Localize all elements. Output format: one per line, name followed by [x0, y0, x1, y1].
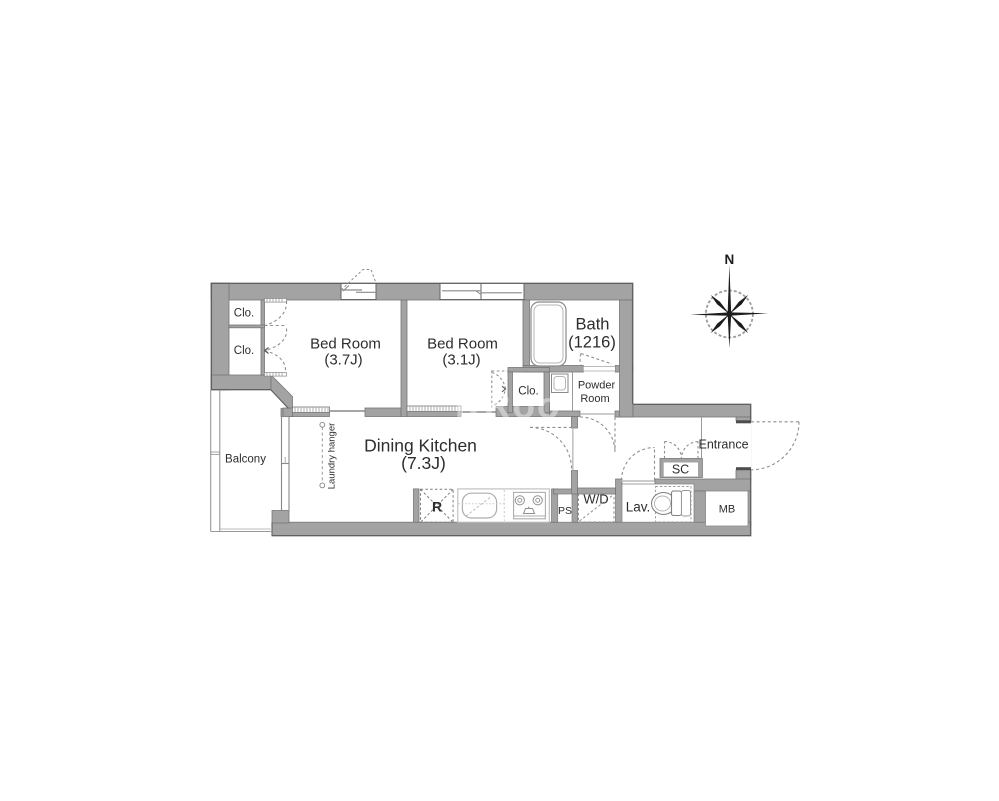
svg-text:SC: SC	[672, 463, 689, 477]
svg-text:(3.7J): (3.7J)	[324, 352, 362, 369]
svg-text:Powder: Powder	[578, 380, 616, 392]
svg-text:KRoo: KRoo	[455, 385, 562, 426]
svg-text:N: N	[725, 252, 735, 267]
svg-text:Bed Room: Bed Room	[310, 336, 381, 353]
svg-text:R: R	[432, 499, 442, 515]
svg-text:Bed Room: Bed Room	[427, 336, 498, 353]
svg-text:Bath: Bath	[576, 316, 610, 334]
svg-text:Laundry hanger: Laundry hanger	[327, 423, 338, 490]
svg-text:Clo.: Clo.	[234, 345, 254, 357]
svg-text:(3.1J): (3.1J)	[442, 352, 480, 369]
svg-text:Balcony: Balcony	[225, 454, 266, 466]
svg-text:(7.3J): (7.3J)	[401, 453, 446, 473]
svg-text:Lav.: Lav.	[626, 500, 651, 515]
svg-text:Clo.: Clo.	[518, 386, 538, 398]
svg-text:Clo.: Clo.	[234, 308, 254, 320]
svg-text:W/D: W/D	[583, 492, 608, 507]
svg-text:(1216): (1216)	[568, 334, 616, 352]
svg-text:Room: Room	[580, 393, 609, 405]
svg-text:PS: PS	[558, 505, 572, 517]
svg-text:Entrance: Entrance	[698, 438, 748, 452]
svg-text:MB: MB	[719, 504, 736, 516]
